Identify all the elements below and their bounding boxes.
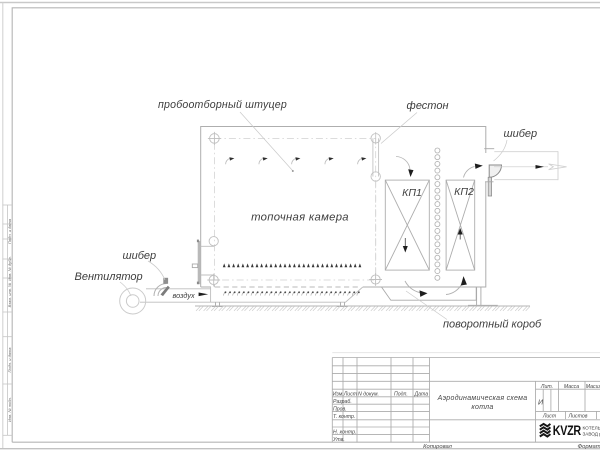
svg-text:котла: котла [471, 404, 493, 411]
svg-text:шибер: шибер [504, 128, 538, 140]
svg-text:Вентилятор: Вентилятор [75, 271, 143, 283]
svg-text:пробоотборный штуцер: пробоотборный штуцер [158, 99, 287, 111]
svg-text:N докум.: N докум. [358, 391, 379, 397]
svg-text:Лит.: Лит. [540, 384, 553, 390]
svg-text:Листов: Листов [568, 414, 588, 420]
svg-text:Аэродинамическая схема: Аэродинамическая схема [437, 394, 528, 402]
svg-text:шибер: шибер [123, 250, 157, 262]
svg-text:И: И [538, 398, 544, 407]
svg-text:Подп. и дата: Подп. и дата [7, 218, 12, 244]
svg-text:Формат: Формат [578, 444, 600, 450]
svg-text:Подп. и дата: Подп. и дата [7, 347, 12, 373]
svg-text:Дата: Дата [414, 391, 429, 397]
svg-text:Н. контр.: Н. контр. [333, 429, 356, 435]
svg-text:КОТЕЛЬН: КОТЕЛЬН [583, 426, 600, 431]
svg-text:ЗАВОД р: ЗАВОД р [583, 432, 600, 437]
svg-text:Т. контр.: Т. контр. [333, 414, 355, 420]
svg-text:Масштаб: Масштаб [586, 384, 600, 390]
svg-text:Копировал: Копировал [423, 444, 453, 450]
svg-text:фестон: фестон [407, 100, 449, 112]
svg-text:топочная камера: топочная камера [251, 212, 349, 224]
svg-text:воздух: воздух [173, 291, 196, 300]
svg-text:Подп.: Подп. [394, 391, 408, 397]
svg-text:Инв. № дубл.: Инв. № дубл. [7, 256, 12, 281]
svg-text:Масса: Масса [564, 384, 579, 390]
svg-text:Утв.: Утв. [333, 437, 345, 443]
svg-text:КП1: КП1 [402, 187, 422, 199]
svg-text:поворотный короб: поворотный короб [443, 318, 542, 330]
svg-text:КП2: КП2 [454, 186, 474, 198]
svg-text:Разраб.: Разраб. [333, 399, 352, 405]
svg-text:Пров.: Пров. [333, 406, 347, 412]
svg-text:Взам. инв. №: Взам. инв. № [7, 282, 12, 307]
svg-text:Инв. № подл.: Инв. № подл. [7, 397, 12, 422]
svg-text:Лист: Лист [542, 414, 557, 420]
svg-text:Изм.Лист: Изм.Лист [333, 391, 358, 397]
svg-text:KVZR: KVZR [553, 423, 581, 439]
